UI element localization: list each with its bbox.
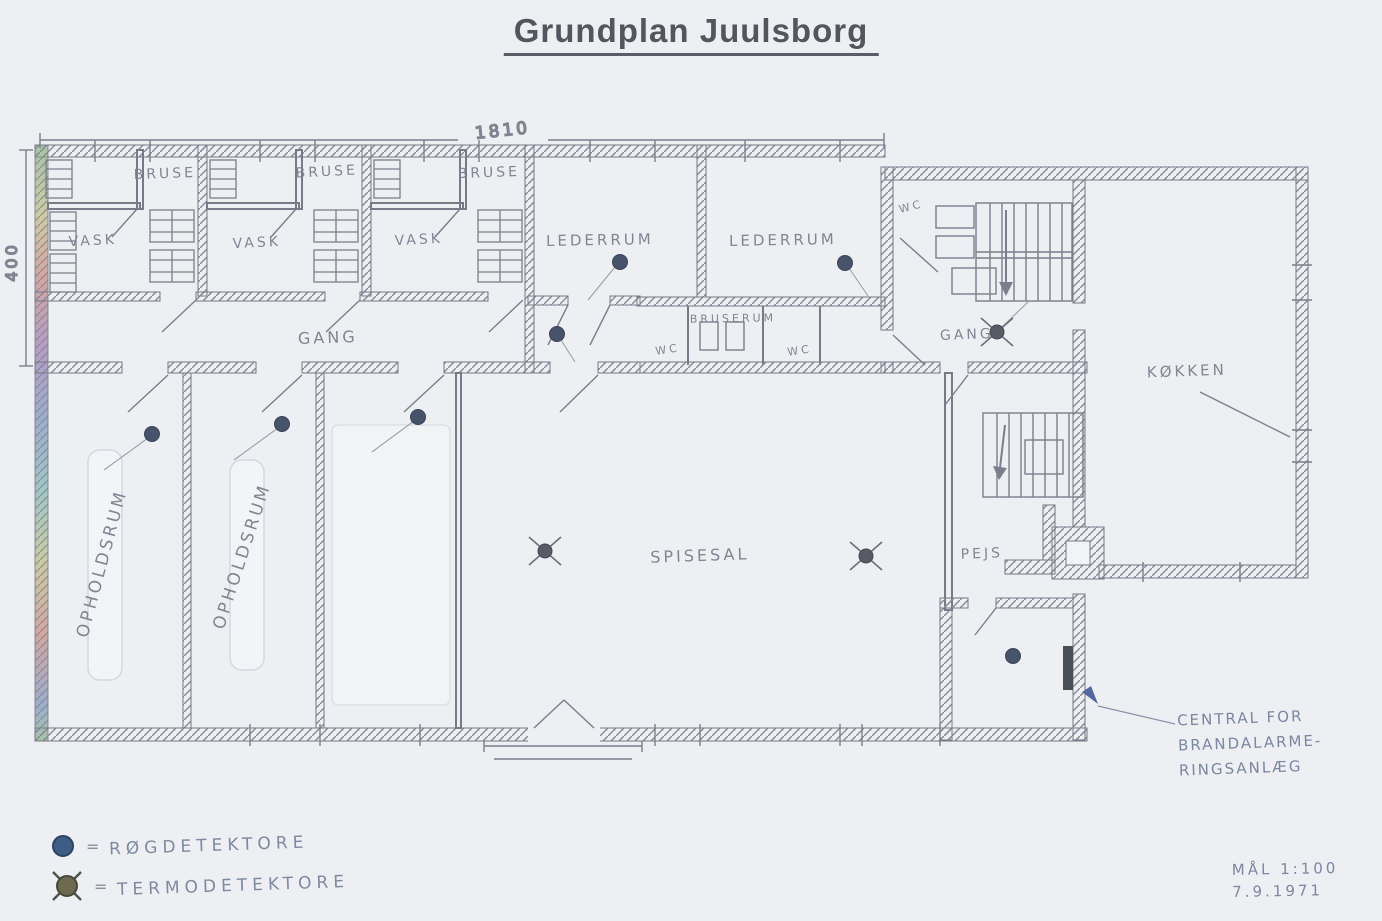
alarm-panel xyxy=(1063,646,1073,690)
room-label-bruse-1: BRUSE xyxy=(133,165,196,183)
thermo-detectors xyxy=(529,318,1013,570)
room-label-bruserum: BRUSERUM xyxy=(690,311,777,326)
faint-furniture xyxy=(88,425,450,705)
smoke-detector xyxy=(411,410,426,425)
room-label-koekken: KØKKEN xyxy=(1147,361,1228,382)
page-title: Grundplan Juulsborg xyxy=(504,12,879,56)
room-label-vask-2: VASK xyxy=(232,234,281,253)
room-label-vask-3: VASK xyxy=(394,231,443,250)
room-label-lederrum-1: LEDERRUM xyxy=(546,230,654,250)
legend-thermo-label: TERMODETEKTORE xyxy=(117,872,350,900)
smoke-detector xyxy=(275,417,290,432)
smoke-detector xyxy=(550,327,565,342)
room-label-vask-1: VASK xyxy=(68,232,117,251)
legend-equals: = xyxy=(86,837,99,856)
thermo-detector xyxy=(529,537,561,565)
outer-walls xyxy=(35,145,1308,741)
stairs-upper xyxy=(976,203,1072,301)
fire-central-annotation: CENTRAL FOR BRANDALARME- RINGSANLÆG xyxy=(1177,704,1324,784)
room-label-gang-main: GANG xyxy=(298,327,358,348)
legend-row-smoke: = RØGDETEKTORE xyxy=(50,826,350,866)
room-label-spisesal: SPISESAL xyxy=(650,544,750,566)
room-label-wc-2: WC xyxy=(786,342,812,358)
wall-left xyxy=(35,145,48,741)
legend: = RØGDETEKTORE = TERMODETEKTORE xyxy=(50,826,350,906)
room-label-lederrum-2: LEDERRUM xyxy=(729,230,837,250)
room-label-pejs: PEJS xyxy=(960,545,1003,562)
stair-direction-arrow xyxy=(999,282,1013,296)
smoke-detector xyxy=(838,256,853,271)
wall-right-rightwing xyxy=(1296,167,1308,578)
room-label-wc-1: WC xyxy=(654,341,680,357)
room-label-bruse-3: BRUSE xyxy=(457,164,520,182)
fireplace xyxy=(1043,505,1055,560)
smoke-detector-icon xyxy=(50,833,76,859)
legend-smoke-label: RØGDETEKTORE xyxy=(109,833,309,860)
legend-equals: = xyxy=(94,877,107,896)
dimension-top: 1810 xyxy=(40,118,884,148)
dimension-left: 400 xyxy=(2,150,33,366)
scanned-floorplan-page: 1810 400 BRUSEBRUSEBRUSEVASKVASKVASKGANG… xyxy=(0,0,1382,921)
beds xyxy=(46,160,522,292)
annotation-line: RINGSANLÆG xyxy=(1178,753,1323,783)
thermo-detector-icon xyxy=(50,869,84,903)
legend-row-thermo: = TERMODETEKTORE xyxy=(50,866,350,906)
room-label-wc-3: WC xyxy=(898,197,925,216)
smoke-detector xyxy=(145,427,160,442)
wall-top-rightwing xyxy=(885,167,1308,180)
title-block: MÅL 1:100 7.9.1971 xyxy=(1232,857,1339,903)
smoke-detector xyxy=(613,255,628,270)
date-label: 7.9.1971 xyxy=(1232,879,1339,903)
dimension-width-label: 1810 xyxy=(474,118,531,144)
stairs-lower xyxy=(983,413,1083,497)
stair-direction-arrow xyxy=(993,466,1007,480)
floor-plan-canvas: 1810 400 BRUSEBRUSEBRUSEVASKVASKVASKGANG… xyxy=(0,0,1382,921)
thermo-detector xyxy=(850,542,882,570)
wall-kitchen-bottom xyxy=(1099,565,1296,578)
smoke-detector xyxy=(1006,649,1021,664)
dimension-height-label: 400 xyxy=(2,242,21,282)
room-label-bruse-2: BRUSE xyxy=(295,162,358,181)
scale-label: MÅL 1:100 xyxy=(1232,857,1339,881)
